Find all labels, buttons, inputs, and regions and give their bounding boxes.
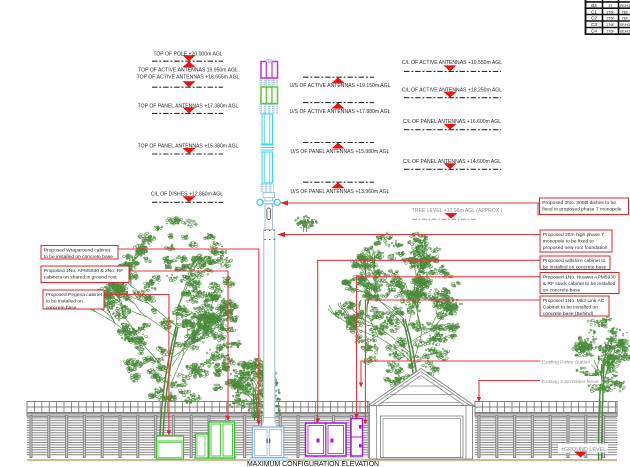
svg-text:Proposed 2No. 300Ø dishes to b: Proposed 2No. 300Ø dishes to be: [542, 200, 616, 206]
svg-text:EE/H3: EE/H3: [620, 4, 630, 8]
svg-text:3T: 3T: [609, 4, 613, 8]
svg-text:on concrete base: on concrete base: [543, 288, 581, 294]
svg-text:TEF: TEF: [622, 17, 628, 21]
svg-text:C2: C2: [591, 16, 597, 21]
svg-text:Proposed Wraparound cabinet: Proposed Wraparound cabinet: [44, 247, 111, 253]
svg-text:Proposed wiltshire cabinet to: Proposed wiltshire cabinet to: [543, 258, 606, 264]
svg-text:concrete base (Behind): concrete base (Behind): [543, 311, 594, 317]
svg-text:Proposed 20m high phase 7: Proposed 20m high phase 7: [543, 232, 604, 238]
svg-text:EE/H3: EE/H3: [620, 23, 630, 27]
svg-text:Proposed 1No. Mk3 Link AC: Proposed 1No. Mk3 Link AC: [543, 298, 605, 304]
svg-text:EE/H3: EE/H3: [620, 30, 630, 34]
svg-text:TOP OF ACTIVE ANTENNAS +18.655: TOP OF ACTIVE ANTENNAS +18.655m AGL: [137, 75, 240, 81]
svg-text:2T6F: 2T6F: [607, 30, 615, 34]
svg-text:C4: C4: [591, 29, 597, 34]
svg-text:Existing 2.4m timber fence: Existing 2.4m timber fence: [542, 379, 599, 385]
svg-text:U/S OF PANEL ANTENNAS +15,980m: U/S OF PANEL ANTENNAS +15,980m AGL: [291, 149, 390, 155]
svg-text:monopole to be fixed to: monopole to be fixed to: [543, 239, 594, 245]
svg-text:cabinets on shared in ground r: cabinets on shared in ground root: [44, 275, 118, 281]
svg-text:C1: C1: [591, 9, 597, 14]
svg-text:C/L OF ACTIVE ANTENNAS +19.550: C/L OF ACTIVE ANTENNAS +19.550m AGL: [402, 60, 502, 66]
svg-text:Proposed 1No. APM5930 & 2No. R: Proposed 1No. APM5930 & 2No. RF: [44, 268, 123, 274]
svg-text:fixed to proposed phase 7 mono: fixed to proposed phase 7 monopole: [542, 207, 621, 213]
svg-text:Proposed 1No. Huawei APM5930: Proposed 1No. Huawei APM5930: [543, 274, 616, 280]
svg-text:2T6F: 2T6F: [607, 10, 615, 14]
svg-text:Existing Power Station: Existing Power Station: [542, 360, 590, 366]
svg-text:proposed new root foundation: proposed new root foundation: [543, 245, 608, 251]
svg-text:MAXIMUM CONFIGURATION ELEVATIO: MAXIMUM CONFIGURATION ELEVATION: [247, 461, 379, 467]
svg-text:& RF stack cabinet to be insta: & RF stack cabinet to be installed: [543, 281, 616, 287]
svg-text:2T6F: 2T6F: [607, 17, 615, 21]
svg-text:2T6F: 2T6F: [607, 23, 615, 27]
svg-text:B4: B4: [591, 3, 597, 8]
svg-text:Proposed Pegena cabinet: Proposed Pegena cabinet: [46, 292, 103, 298]
svg-text:to be installed on concrete ba: to be installed on concrete base: [44, 254, 113, 260]
svg-text:TOP OF ACTIVE ANTENNAS 19.950m: TOP OF ACTIVE ANTENNAS 19.950m AGL: [138, 68, 238, 74]
svg-text:U/S OF ACTIVE ANTENNAS +19.150: U/S OF ACTIVE ANTENNAS +19.150m AGL: [290, 83, 391, 89]
svg-text:U/S OF PANEL ANTENNAS +13,960m: U/S OF PANEL ANTENNAS +13,960m AGL: [291, 189, 390, 195]
svg-text:concrete base: concrete base: [46, 305, 77, 311]
svg-text:to be installed on: to be installed on: [46, 299, 83, 305]
svg-text:U/S OF ACTIVE ANTENNAS +17.880: U/S OF ACTIVE ANTENNAS +17.880m AGL: [290, 109, 391, 115]
svg-text:C3: C3: [591, 22, 597, 27]
svg-text:TEF: TEF: [622, 10, 628, 14]
svg-text:be installed on concrete base: be installed on concrete base: [543, 265, 607, 271]
svg-text:Cabinet to be installed on: Cabinet to be installed on: [543, 305, 598, 311]
